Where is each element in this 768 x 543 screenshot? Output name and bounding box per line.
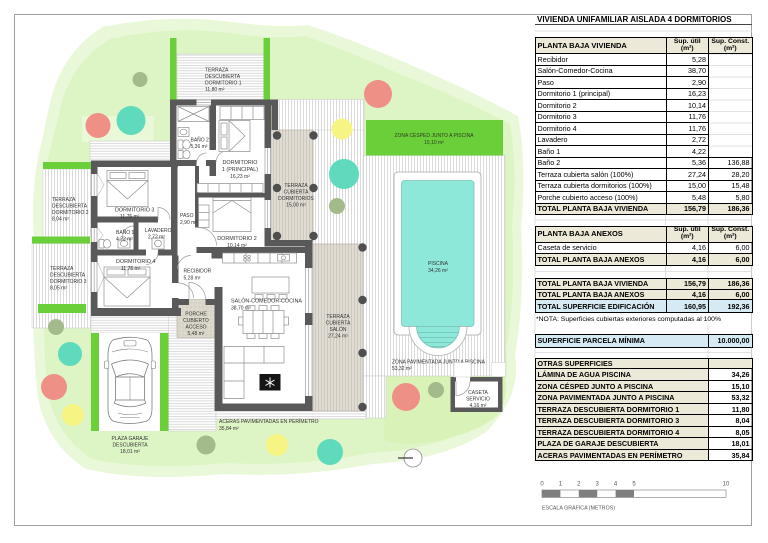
svg-text:4,22 m²: 4,22 m² bbox=[116, 237, 133, 243]
svg-text:5,28 m²: 5,28 m² bbox=[184, 276, 201, 282]
svg-text:ZONA PAVIMENTADA JUNTO A PISCI: ZONA PAVIMENTADA JUNTO A PISCINA bbox=[392, 360, 486, 366]
svg-text:5: 5 bbox=[632, 482, 636, 488]
svg-text:TERRAZA: TERRAZA bbox=[52, 197, 76, 203]
svg-text:16,23 m²: 16,23 m² bbox=[230, 174, 250, 180]
svg-text:DORMITORIO: DORMITORIO bbox=[223, 160, 258, 166]
svg-text:SALÓN: SALÓN bbox=[330, 326, 347, 333]
svg-text:ACCESO: ACCESO bbox=[185, 325, 206, 331]
svg-text:CASETA: CASETA bbox=[468, 390, 488, 396]
svg-text:1: 1 bbox=[559, 482, 563, 488]
svg-text:27,24 m²: 27,24 m² bbox=[328, 334, 348, 340]
svg-text:DORMITORIO 4: DORMITORIO 4 bbox=[116, 259, 155, 265]
svg-text:35,84 m²: 35,84 m² bbox=[219, 426, 239, 432]
svg-text:1 (PRINCIPAL): 1 (PRINCIPAL) bbox=[222, 167, 258, 173]
svg-text:11,76 m²: 11,76 m² bbox=[121, 266, 141, 272]
svg-text:10: 10 bbox=[723, 482, 730, 488]
svg-text:4: 4 bbox=[614, 482, 618, 488]
svg-text:TERRAZA: TERRAZA bbox=[50, 266, 74, 272]
svg-text:38,70 m²: 38,70 m² bbox=[231, 306, 251, 312]
svg-text:DORMITORIO 2: DORMITORIO 2 bbox=[217, 236, 256, 242]
svg-text:15,00 m²: 15,00 m² bbox=[286, 203, 306, 209]
svg-text:5,48 m²: 5,48 m² bbox=[188, 331, 205, 337]
svg-text:CUBIERTA: CUBIERTA bbox=[326, 321, 351, 327]
svg-text:DORMITORIO 2: DORMITORIO 2 bbox=[52, 210, 89, 216]
svg-text:CUBIERTA: CUBIERTA bbox=[284, 190, 309, 196]
svg-text:DORMITORIO 3: DORMITORIO 3 bbox=[115, 208, 154, 214]
svg-text:8,05 m²: 8,05 m² bbox=[50, 286, 67, 292]
svg-text:5,36 m²: 5,36 m² bbox=[191, 144, 208, 150]
svg-text:SERVICIO: SERVICIO bbox=[466, 397, 490, 403]
svg-text:PLAZA GARAJE: PLAZA GARAJE bbox=[112, 436, 150, 442]
svg-text:RECIBIDOR: RECIBIDOR bbox=[184, 269, 212, 275]
svg-text:PISCINA: PISCINA bbox=[428, 261, 449, 267]
svg-text:8,04 m²: 8,04 m² bbox=[52, 217, 69, 223]
svg-text:3: 3 bbox=[596, 482, 600, 488]
svg-text:10,14 m²: 10,14 m² bbox=[227, 243, 247, 249]
svg-text:ACERAS PAVIMENTADAS EN PERÍMET: ACERAS PAVIMENTADAS EN PERÍMETRO bbox=[219, 418, 319, 425]
svg-text:2,72 m²: 2,72 m² bbox=[148, 235, 165, 241]
svg-text:BAÑO 1: BAÑO 1 bbox=[116, 229, 135, 236]
svg-text:TERRAZA: TERRAZA bbox=[284, 183, 308, 189]
svg-text:DESCUBIERTA: DESCUBIERTA bbox=[50, 273, 86, 279]
svg-text:ZONA CÉSPED JUNTO A PISCINA: ZONA CÉSPED JUNTO A PISCINA bbox=[394, 132, 474, 139]
svg-text:SALÓN-COMEDOR-COCINA: SALÓN-COMEDOR-COCINA bbox=[231, 298, 302, 305]
svg-text:11,76 m²: 11,76 m² bbox=[120, 214, 140, 220]
svg-text:4,16 m²: 4,16 m² bbox=[470, 403, 487, 409]
svg-text:11,80 m²: 11,80 m² bbox=[205, 87, 225, 93]
svg-text:DORMITORIOS: DORMITORIOS bbox=[278, 196, 314, 202]
svg-text:ESCALA GRÁFICA (METROS): ESCALA GRÁFICA (METROS) bbox=[542, 505, 615, 512]
svg-text:DORMITORIO 1: DORMITORIO 1 bbox=[205, 81, 242, 87]
svg-text:DESCUBIERTA: DESCUBIERTA bbox=[205, 74, 241, 80]
svg-text:34,26 m²: 34,26 m² bbox=[428, 268, 448, 274]
svg-text:CUBIERTO: CUBIERTO bbox=[183, 318, 209, 324]
svg-text:53,32 m²: 53,32 m² bbox=[392, 366, 412, 372]
svg-text:TERRAZA: TERRAZA bbox=[326, 314, 350, 320]
svg-text:15,10 m²: 15,10 m² bbox=[424, 140, 444, 146]
svg-text:PASO: PASO bbox=[180, 213, 194, 219]
svg-text:18,01 m²: 18,01 m² bbox=[120, 449, 140, 455]
svg-text:TERRAZA: TERRAZA bbox=[205, 68, 229, 74]
svg-text:DORMITORIO 3: DORMITORIO 3 bbox=[50, 279, 87, 285]
svg-text:PORCHE: PORCHE bbox=[185, 312, 207, 318]
svg-text:BAÑO 2: BAÑO 2 bbox=[191, 137, 210, 144]
svg-text:LAVADERO: LAVADERO bbox=[145, 228, 172, 234]
svg-text:2,90 m²: 2,90 m² bbox=[180, 220, 197, 226]
svg-text:DESCUBIERTA: DESCUBIERTA bbox=[112, 443, 148, 449]
svg-text:0: 0 bbox=[540, 482, 544, 488]
svg-text:2: 2 bbox=[577, 482, 581, 488]
svg-text:DESCUBIERTA: DESCUBIERTA bbox=[52, 204, 88, 210]
